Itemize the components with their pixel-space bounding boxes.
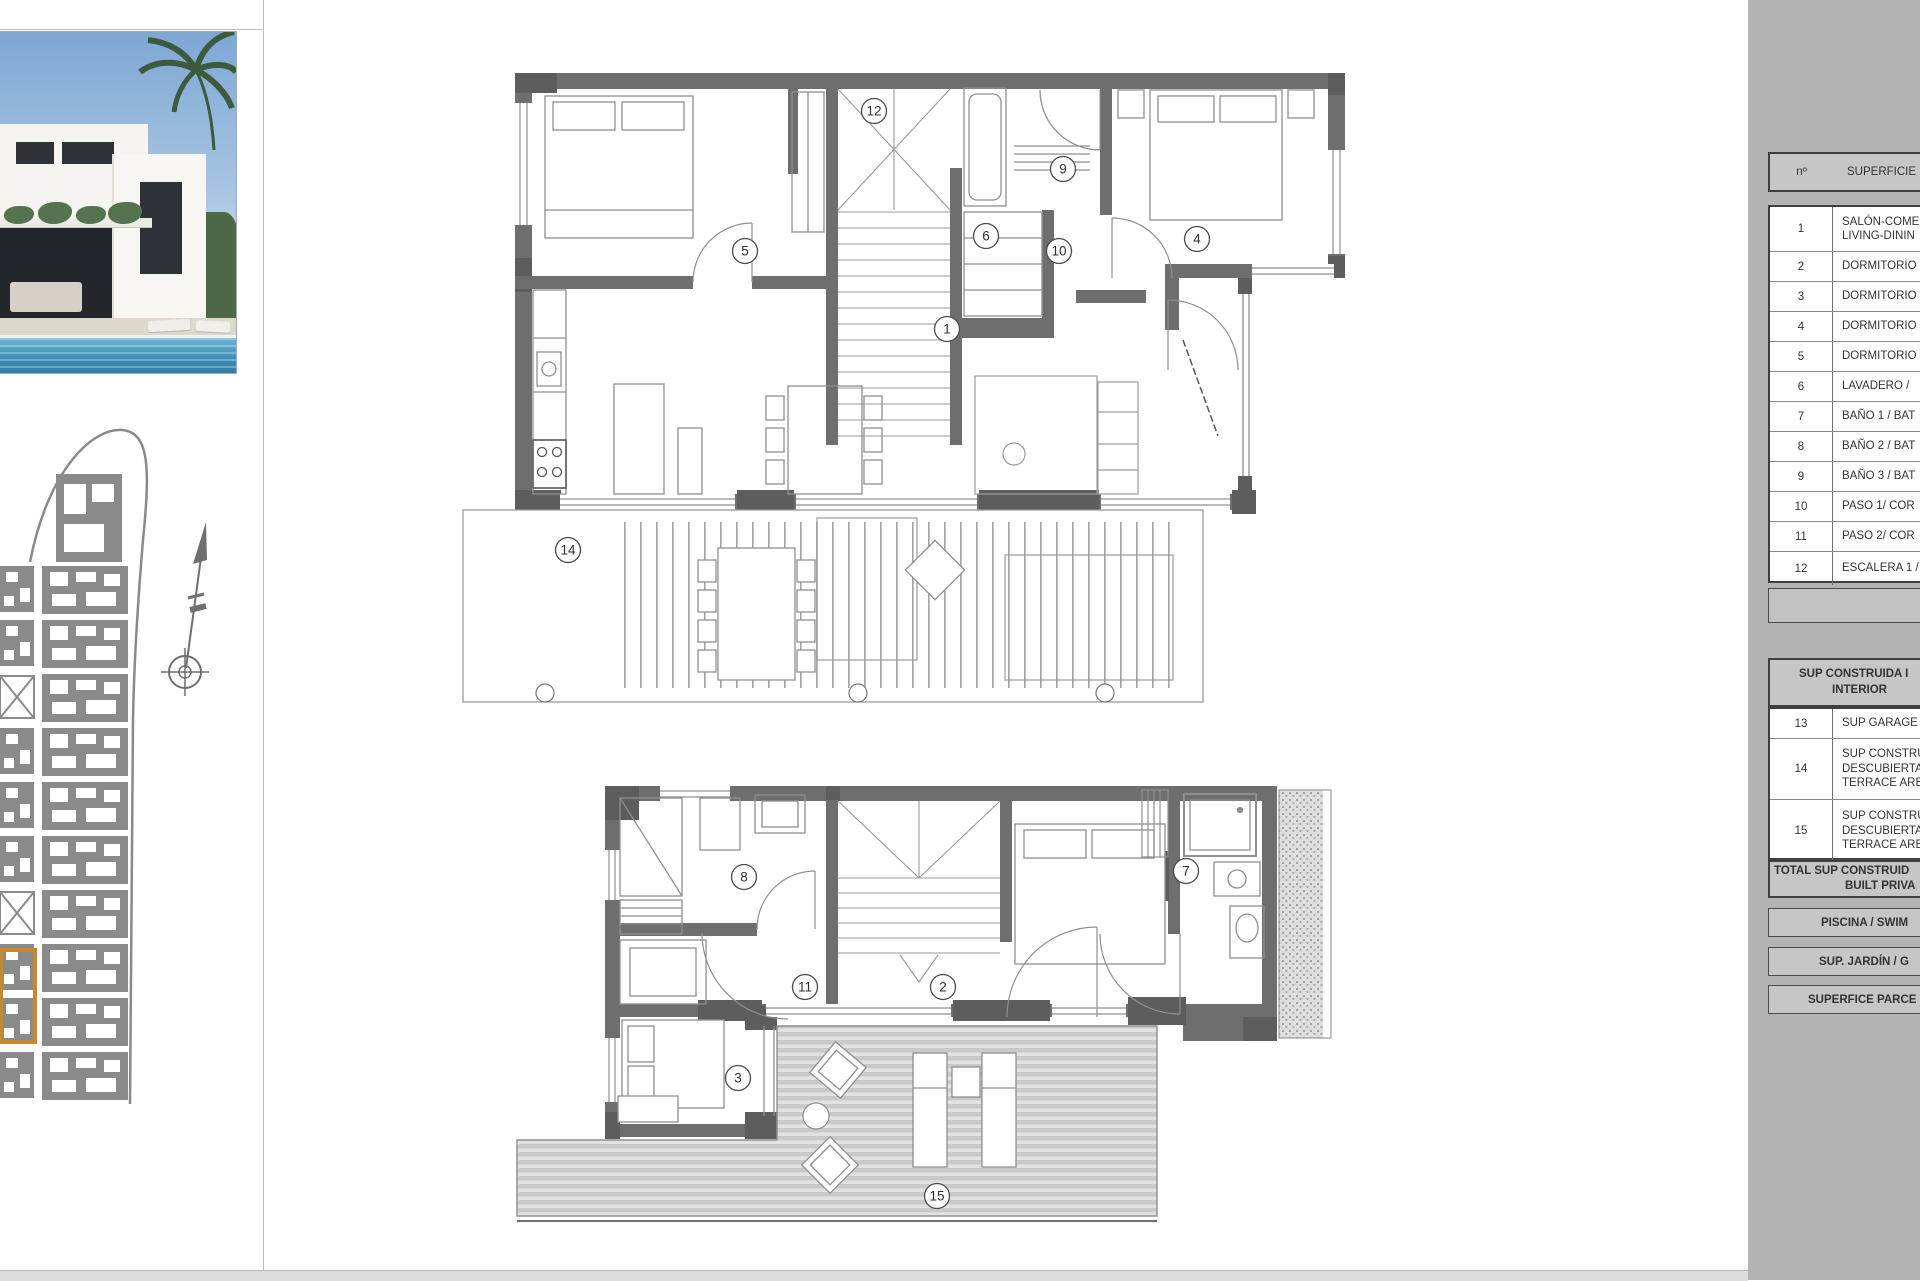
svg-text:14: 14 xyxy=(560,543,576,558)
bathroom-8 xyxy=(620,795,805,934)
legend-header-num: nº xyxy=(1770,166,1833,178)
room-label-11: 11 xyxy=(793,975,818,1000)
table-row: 3 DORMITORIO xyxy=(1770,282,1920,312)
table-row: 10 PASO 1/ COR xyxy=(1770,492,1920,522)
svg-text:11: 11 xyxy=(798,980,812,995)
svg-text:3: 3 xyxy=(734,1071,742,1086)
bedroom-3 xyxy=(618,1020,774,1122)
svg-text:8: 8 xyxy=(740,870,748,885)
sofa-area xyxy=(975,376,1138,494)
room-label-6: 6 xyxy=(974,224,999,249)
bed-bedroom4 xyxy=(1118,90,1314,220)
legend-panel xyxy=(1748,0,1920,1280)
room-label-9: 9 xyxy=(1051,157,1076,182)
table-row: 1 SALÓN-COMELIVING-DININ xyxy=(1770,207,1920,252)
table-row: 11 PASO 2/ COR xyxy=(1770,522,1920,552)
table-separator-band xyxy=(1768,588,1920,623)
svg-text:9: 9 xyxy=(1059,162,1067,177)
column-separator xyxy=(263,0,264,1270)
room-label-3: 3 xyxy=(726,1066,751,1091)
dining-table xyxy=(766,386,882,494)
table-row: 15 SUP CONSTRU DESCUBIERTA TERRACE ARE xyxy=(1770,800,1920,862)
room-label-14: 14 xyxy=(556,538,581,563)
table-row: 14 SUP CONSTRU DESCUBIERTA TERRACE ARE xyxy=(1770,739,1920,800)
svg-text:10: 10 xyxy=(1051,244,1066,259)
room-label-2: 2 xyxy=(931,975,956,1000)
table-row: 12 ESCALERA 1 / xyxy=(1770,552,1920,585)
room-label-15: 15 xyxy=(925,1184,950,1209)
svg-text:7: 7 xyxy=(1182,864,1190,879)
bed-bedroom5 xyxy=(545,96,693,238)
kitchen-island xyxy=(614,384,702,494)
svg-text:1: 1 xyxy=(943,322,951,337)
table-row: 5 DORMITORIO xyxy=(1770,342,1920,372)
upper-floor-plan xyxy=(515,73,1345,514)
garden-row: SUP. JARDÍN / G xyxy=(1768,947,1920,976)
svg-text:5: 5 xyxy=(741,244,749,259)
pool-row: PISCINA / SWIM xyxy=(1768,908,1920,937)
svg-text:2: 2 xyxy=(939,980,947,995)
site-units-right xyxy=(42,566,128,1100)
room-label-12: 12 xyxy=(862,99,887,124)
table-row: 9 BAÑO 3 / BAT xyxy=(1770,462,1920,492)
sheet-bottom-edge xyxy=(0,1270,1748,1281)
room-label-1: 1 xyxy=(935,317,960,342)
svg-text:4: 4 xyxy=(1193,232,1201,247)
parcel-row: SUPERFICE PARCE xyxy=(1768,985,1920,1014)
svg-text:12: 12 xyxy=(866,104,881,119)
staircase-upper xyxy=(838,89,950,436)
table-row: 2 DORMITORIO xyxy=(1770,252,1920,282)
closet-6 xyxy=(964,212,1042,316)
table-row: 6 LAVADERO / xyxy=(1770,372,1920,402)
room-label-5: 5 xyxy=(733,239,758,264)
room-label-8: 8 xyxy=(732,865,757,890)
room-label-10: 10 xyxy=(1047,239,1072,264)
gravel-strip xyxy=(1279,790,1323,1038)
legend-header: nº SUPERFICIE Ú xyxy=(1768,152,1920,192)
table-row: 13 SUP GARAGE xyxy=(1770,709,1920,739)
top-rule xyxy=(0,29,263,30)
floor-plan-drawing: 12 5 6 9 10 4 1 14 8 7 11 2 3 15 xyxy=(0,0,1920,1280)
total-row: TOTAL SUP CONSTRUID BUILT PRIVA xyxy=(1768,860,1920,898)
room-label-7: 7 xyxy=(1174,859,1199,884)
hall-closet xyxy=(620,940,706,1004)
table-row: 8 BAÑO 2 / BAT xyxy=(1770,432,1920,462)
svg-text:15: 15 xyxy=(929,1189,944,1204)
site-plan xyxy=(0,430,147,1104)
legend-header-label: SUPERFICIE Ú xyxy=(1833,166,1920,178)
bathroom-9 xyxy=(964,88,1100,206)
door-bathroom8 xyxy=(757,871,815,929)
plan-sheet: 12 5 6 9 10 4 1 14 8 7 11 2 3 15 nº SUPE… xyxy=(0,0,1920,1280)
table-row: 7 BAÑO 1 / BAT xyxy=(1770,402,1920,432)
north-arrow-compass xyxy=(161,522,209,696)
site-units-left xyxy=(0,566,34,1098)
staircase-lower xyxy=(838,801,1000,982)
built-area-rows: 13 SUP GARAGE 14 SUP CONSTRU DESCUBIERTA… xyxy=(1768,707,1920,860)
svg-text:6: 6 xyxy=(982,229,990,244)
legend-rows: 1 SALÓN-COMELIVING-DININ 2 DORMITORIO 3 … xyxy=(1768,205,1920,583)
table-row: 4 DORMITORIO xyxy=(1770,312,1920,342)
sliding-glass-door xyxy=(1238,278,1252,492)
section-mark xyxy=(1183,340,1218,436)
room-label-4: 4 xyxy=(1185,227,1210,252)
stove xyxy=(533,440,566,488)
built-area-header: SUP CONSTRUIDA I INTERIOR xyxy=(1768,658,1920,707)
